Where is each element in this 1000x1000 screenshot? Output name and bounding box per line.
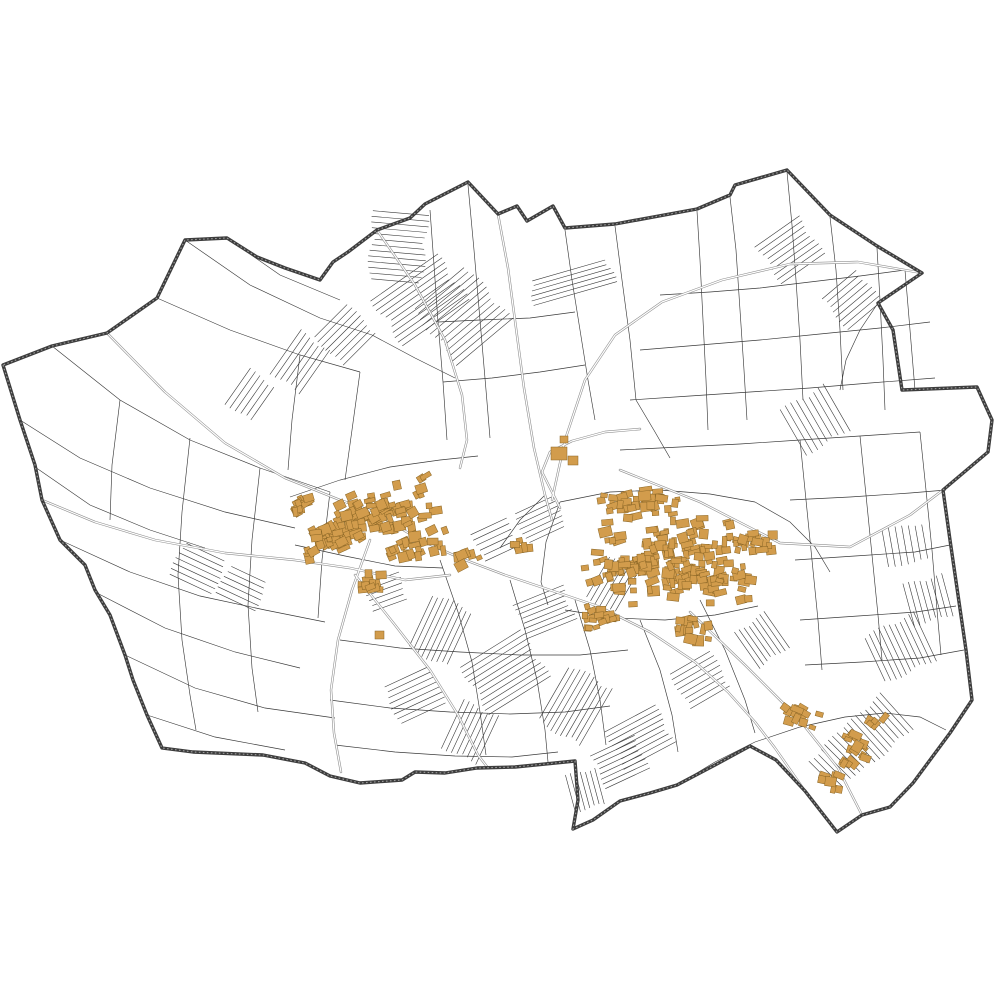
- strip-parcel-line: [685, 676, 723, 698]
- strip-parcel-line: [734, 632, 760, 669]
- building: [646, 526, 658, 533]
- strip-parcel-line: [809, 397, 832, 436]
- parcel-line: [345, 372, 360, 480]
- strip-parcel-line: [895, 624, 915, 667]
- parcel-line: [905, 270, 915, 390]
- parcel-line: [615, 226, 636, 400]
- parcel-line: [790, 490, 946, 500]
- building: [670, 517, 675, 525]
- strip-parcel-line: [764, 611, 790, 648]
- strip-parcel-group: [441, 699, 498, 764]
- strip-parcels-layer: [170, 211, 953, 813]
- strip-parcel-line: [880, 693, 913, 730]
- strip-parcel-group: [865, 612, 936, 682]
- strip-parcel-line: [281, 338, 310, 380]
- building: [747, 530, 758, 537]
- strip-parcel-line: [942, 573, 954, 616]
- building: [724, 560, 734, 567]
- building: [364, 497, 375, 503]
- building: [426, 503, 432, 509]
- road-casing: [355, 575, 488, 768]
- building: [686, 627, 693, 633]
- building: [604, 559, 613, 569]
- strip-parcel-line: [480, 535, 513, 550]
- building: [366, 503, 376, 508]
- strip-parcel-line: [822, 270, 856, 299]
- strip-parcel-line: [823, 384, 850, 431]
- strip-parcel-line: [609, 714, 662, 742]
- strip-parcel-line: [295, 348, 324, 390]
- building: [600, 493, 607, 498]
- road-casing: [331, 540, 370, 772]
- parcel-line: [157, 298, 360, 372]
- parcel-line: [620, 432, 920, 450]
- building: [699, 529, 709, 540]
- strip-parcel-line: [478, 655, 532, 689]
- strip-parcel-line: [913, 612, 936, 662]
- cadastral-map: [0, 0, 1000, 1000]
- road-casing: [552, 262, 922, 500]
- strip-parcel-group: [734, 611, 789, 668]
- strip-parcel-line: [836, 287, 872, 317]
- parcel-line: [640, 620, 678, 752]
- building: [415, 483, 428, 495]
- parcel-line: [877, 248, 885, 410]
- road-centerline: [107, 333, 372, 511]
- strip-parcel-line: [520, 511, 561, 530]
- strip-parcel-line: [902, 526, 909, 565]
- road-centerline: [552, 262, 922, 500]
- building: [568, 456, 578, 465]
- strip-parcel-line: [391, 280, 449, 320]
- strip-parcel-line: [173, 563, 218, 584]
- building: [609, 537, 616, 544]
- strip-parcel-line: [397, 697, 444, 719]
- building: [652, 488, 662, 494]
- strip-parcel-line: [372, 245, 424, 250]
- building: [365, 570, 372, 578]
- building: [376, 571, 387, 579]
- parcel-line: [468, 185, 490, 438]
- strip-parcel-line: [768, 232, 806, 259]
- strip-parcel-line: [235, 376, 260, 412]
- road-casing: [107, 333, 372, 511]
- strip-parcel-line: [770, 236, 809, 264]
- strip-parcel-group: [670, 651, 730, 709]
- building: [585, 625, 592, 631]
- strip-parcel-line: [579, 688, 612, 745]
- strip-parcel-group: [755, 216, 825, 284]
- strip-parcel-line: [179, 553, 222, 573]
- strip-parcel-group: [590, 735, 650, 788]
- strip-parcel-line: [848, 301, 882, 330]
- strip-parcel-line: [418, 598, 444, 653]
- strip-parcel-line: [176, 558, 221, 579]
- strip-parcel-line: [532, 277, 617, 301]
- building: [725, 520, 735, 530]
- strip-parcel-line: [744, 628, 767, 661]
- building: [671, 499, 678, 508]
- road-casing: [377, 230, 467, 468]
- building: [551, 447, 567, 460]
- strip-parcel-line: [565, 775, 575, 813]
- strip-parcel-line: [540, 668, 569, 719]
- parcel-line: [920, 432, 941, 655]
- strip-parcel-line: [606, 709, 659, 737]
- building: [699, 560, 705, 567]
- building: [731, 567, 738, 574]
- strip-parcel-group: [315, 305, 376, 366]
- parcel-line: [20, 420, 295, 528]
- strip-parcel-line: [774, 244, 819, 275]
- strip-parcel-line: [371, 254, 439, 301]
- parcel-line: [805, 650, 964, 665]
- strip-parcel-line: [922, 525, 928, 559]
- strip-parcel-line: [785, 406, 812, 454]
- strip-parcel-line: [391, 686, 441, 709]
- strip-parcel-line: [241, 380, 264, 413]
- strip-parcel-line: [803, 399, 828, 442]
- building: [726, 533, 733, 540]
- strip-parcel-line: [532, 260, 605, 281]
- strip-parcel-line: [936, 576, 947, 617]
- strip-parcel-line: [572, 686, 602, 737]
- building: [647, 502, 655, 510]
- strip-parcel-line: [758, 221, 802, 252]
- strip-parcel-group: [225, 368, 274, 420]
- strip-parcel-line: [388, 672, 430, 692]
- parcel-line: [178, 438, 196, 730]
- strip-parcel-group: [531, 260, 617, 306]
- building: [683, 632, 697, 645]
- building: [859, 753, 871, 763]
- strip-parcel-line: [386, 274, 448, 317]
- strip-parcel-line: [605, 768, 650, 789]
- strip-parcel-line: [601, 759, 646, 780]
- building: [589, 618, 596, 623]
- strip-parcel-line: [547, 670, 580, 728]
- building: [582, 612, 588, 619]
- strip-parcel-line: [590, 771, 599, 804]
- parcel-line: [125, 655, 335, 718]
- strip-parcel-line: [926, 581, 936, 617]
- strip-parcel-line: [595, 768, 605, 804]
- strip-parcel-line: [390, 681, 439, 704]
- strip-parcel-line: [482, 666, 545, 705]
- strip-parcel-group: [605, 705, 676, 770]
- building: [628, 578, 636, 584]
- strip-parcel-line: [484, 541, 514, 555]
- strip-parcel-line: [471, 714, 493, 761]
- building: [825, 776, 837, 787]
- building: [704, 551, 715, 560]
- strip-parcel-line: [463, 712, 483, 754]
- strip-parcel-line: [409, 596, 432, 646]
- strip-parcel-line: [755, 216, 800, 248]
- buildings-layer: [290, 436, 889, 793]
- strip-parcel-line: [920, 581, 931, 621]
- building: [670, 578, 675, 588]
- building: [815, 711, 824, 718]
- parcel-line: [443, 365, 585, 382]
- strip-parcel-line: [368, 261, 426, 266]
- parcel-line: [630, 378, 935, 400]
- building: [722, 536, 727, 547]
- strip-parcel-line: [228, 572, 264, 589]
- road-casing: [690, 612, 862, 815]
- strip-parcel-group: [540, 668, 613, 746]
- strip-parcel-line: [321, 311, 356, 346]
- strip-parcel-line: [480, 659, 536, 694]
- strip-parcel-group: [216, 566, 266, 611]
- strip-parcel-line: [343, 333, 375, 365]
- strip-parcel-line: [513, 585, 564, 606]
- strip-parcel-line: [447, 614, 471, 665]
- strip-parcel-line: [531, 272, 614, 296]
- strip-parcel-line: [908, 582, 920, 625]
- parcel-line: [510, 580, 548, 762]
- strip-parcel-line: [230, 372, 256, 409]
- building: [630, 588, 636, 593]
- strip-parcel-line: [756, 618, 781, 653]
- strip-parcel-line: [415, 268, 464, 309]
- strip-parcel-group: [415, 268, 513, 366]
- strip-parcel-line: [225, 368, 251, 405]
- building: [755, 546, 768, 553]
- building: [593, 559, 600, 566]
- parcel-line: [730, 197, 747, 420]
- building: [751, 538, 763, 547]
- building: [745, 595, 753, 602]
- building: [681, 557, 686, 562]
- building: [375, 631, 384, 639]
- building: [706, 600, 714, 606]
- strip-parcel-line: [522, 601, 566, 619]
- building: [369, 524, 380, 532]
- strip-parcel-line: [560, 677, 594, 736]
- strip-parcel-line: [843, 296, 879, 326]
- building: [418, 513, 431, 519]
- strip-parcel-line: [401, 703, 445, 724]
- building: [617, 500, 624, 509]
- strip-parcel-line: [884, 626, 907, 675]
- strip-parcel-line: [780, 410, 807, 456]
- strip-parcel-line: [895, 527, 902, 566]
- strip-parcel-group: [882, 525, 928, 567]
- strip-parcel-line: [445, 303, 494, 344]
- building: [623, 514, 633, 522]
- strip-parcel-group: [565, 768, 604, 813]
- strip-parcel-line: [370, 273, 422, 278]
- strip-parcel-line: [566, 681, 598, 737]
- strip-parcel-line: [827, 276, 858, 302]
- building: [676, 518, 690, 528]
- parcel-line: [372, 335, 455, 378]
- parcel-line: [800, 440, 822, 670]
- strip-parcel-line: [831, 280, 863, 307]
- strip-parcel-line: [392, 283, 455, 327]
- strip-parcel-line: [760, 614, 786, 651]
- building: [292, 507, 298, 517]
- strip-parcel-line: [532, 268, 611, 291]
- strip-parcel-line: [447, 306, 500, 351]
- building: [392, 480, 401, 491]
- strip-parcel-group: [780, 384, 850, 456]
- building: [581, 565, 589, 571]
- strip-parcel-line: [594, 741, 636, 761]
- building: [598, 526, 613, 538]
- strip-parcel-line: [605, 705, 656, 732]
- strip-parcel-line: [903, 584, 915, 627]
- strip-parcel-group: [385, 667, 446, 724]
- building: [667, 593, 680, 602]
- building: [440, 546, 446, 556]
- building: [594, 612, 604, 619]
- building: [687, 616, 697, 622]
- building: [645, 576, 659, 587]
- strip-parcel-line: [889, 625, 911, 672]
- building: [597, 497, 606, 504]
- building: [745, 575, 757, 585]
- building: [652, 511, 659, 516]
- strip-parcel-line: [621, 730, 665, 753]
- building: [593, 624, 600, 630]
- strip-parcel-line: [441, 299, 491, 341]
- building: [612, 583, 625, 592]
- strip-parcel-line: [385, 667, 429, 687]
- building: [741, 544, 746, 551]
- building: [675, 625, 681, 632]
- strip-parcel-line: [465, 638, 529, 678]
- parcel-line: [147, 715, 285, 750]
- strip-parcel-line: [543, 669, 574, 723]
- strip-parcel-line: [888, 528, 895, 567]
- strip-parcel-line: [443, 611, 467, 662]
- strip-parcel-line: [291, 346, 318, 385]
- strip-parcel-line: [251, 387, 274, 420]
- building: [476, 555, 483, 561]
- building: [614, 531, 627, 540]
- strip-parcel-line: [585, 772, 594, 805]
- strip-parcel-line: [612, 719, 663, 746]
- building: [809, 724, 816, 730]
- building: [380, 492, 391, 499]
- parcel-line: [640, 322, 930, 350]
- strip-parcel-group: [471, 518, 518, 561]
- strip-parcel-group: [371, 254, 470, 346]
- strip-parcel-line: [340, 330, 370, 360]
- strip-parcel-line: [431, 603, 458, 661]
- building: [704, 621, 713, 631]
- parcel-line: [860, 436, 882, 660]
- strip-parcel-line: [446, 701, 469, 751]
- parcel-line: [110, 400, 120, 520]
- parcel-line: [840, 303, 878, 390]
- strip-parcel-line: [452, 313, 510, 361]
- strip-parcel-line: [882, 530, 889, 567]
- strip-parcel-line: [270, 329, 302, 374]
- building: [441, 526, 449, 535]
- parcel-line: [438, 312, 575, 322]
- strip-parcel-group: [513, 585, 577, 639]
- strip-parcel-line: [522, 516, 562, 535]
- strip-parcel-line: [580, 772, 590, 808]
- building: [669, 539, 675, 549]
- strip-parcel-line: [437, 607, 463, 662]
- strip-parcel-line: [370, 250, 426, 255]
- strip-parcel-line: [315, 305, 348, 338]
- strip-parcel-line: [900, 622, 920, 665]
- strip-parcel-line: [873, 702, 904, 736]
- parcel-line: [318, 492, 330, 618]
- strip-parcel-line: [170, 574, 212, 593]
- strip-parcel-line: [874, 631, 897, 680]
- parcel-line: [787, 172, 803, 400]
- strip-parcel-line: [373, 211, 429, 216]
- strip-parcel-line: [524, 610, 572, 629]
- strip-parcel-line: [335, 325, 366, 356]
- building: [596, 606, 606, 612]
- parcel-line: [52, 346, 330, 492]
- strip-parcel-line: [171, 568, 215, 589]
- strip-parcel-line: [286, 343, 313, 382]
- building: [591, 549, 604, 556]
- parcel-line: [288, 355, 300, 470]
- building: [682, 581, 692, 589]
- building: [696, 515, 708, 521]
- road-centerline: [355, 575, 488, 768]
- strip-parcel-line: [781, 253, 825, 284]
- strip-parcel-line: [231, 566, 265, 582]
- strip-parcel-line: [473, 523, 509, 540]
- building: [628, 601, 637, 607]
- strip-parcel-line: [839, 291, 876, 322]
- parcel-line: [677, 713, 946, 785]
- strip-parcel-line: [603, 763, 648, 784]
- strip-parcel-line: [818, 388, 844, 434]
- building: [647, 586, 652, 594]
- building: [560, 436, 568, 443]
- building: [712, 541, 718, 549]
- strip-parcel-line: [389, 677, 435, 698]
- building: [415, 551, 422, 561]
- strip-parcel-group: [460, 630, 550, 715]
- building: [705, 636, 712, 641]
- strip-parcel-line: [931, 579, 941, 617]
- map-canvas: [0, 0, 1000, 1000]
- building: [738, 586, 747, 593]
- building: [510, 541, 520, 547]
- strip-parcel-line: [597, 746, 636, 764]
- strip-parcel-line: [485, 546, 517, 561]
- building: [664, 505, 671, 512]
- strip-parcel-line: [878, 628, 901, 678]
- building: [711, 561, 717, 569]
- strip-parcel-line: [330, 320, 364, 354]
- strip-parcel-line: [791, 403, 818, 450]
- building: [606, 508, 613, 515]
- strip-parcel-line: [909, 614, 932, 663]
- road-centerline: [377, 230, 467, 468]
- building: [676, 617, 685, 625]
- building: [618, 561, 631, 568]
- strip-parcel-line: [414, 598, 438, 649]
- strip-parcel-line: [753, 622, 776, 655]
- strip-parcel-line: [915, 526, 921, 560]
- strip-parcel-line: [467, 714, 487, 758]
- strip-parcel-line: [375, 239, 423, 243]
- strip-parcel-line: [468, 643, 530, 682]
